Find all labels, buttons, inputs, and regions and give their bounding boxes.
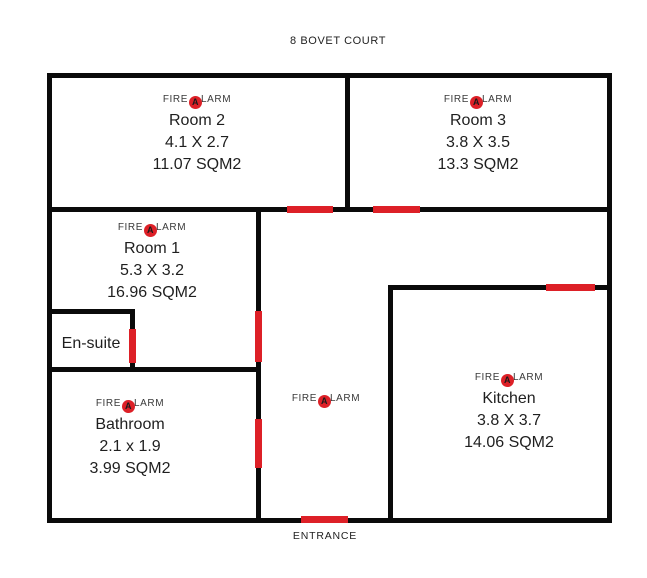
fire-alarm-label: FIREALARM bbox=[409, 370, 609, 385]
room-area: 11.07 SQM2 bbox=[97, 154, 297, 176]
room-dimensions: 3.8 X 3.7 bbox=[409, 410, 609, 432]
fire-alarm-text-suffix: LARM bbox=[134, 398, 164, 409]
door-marker-bathroom bbox=[255, 419, 262, 468]
wall-room2-room3-divider bbox=[345, 78, 350, 207]
room-area: 14.06 SQM2 bbox=[409, 432, 609, 454]
room-area: 3.99 SQM2 bbox=[30, 458, 230, 480]
room-name: Room 2 bbox=[97, 110, 297, 132]
door-marker-entrance bbox=[301, 516, 348, 523]
fire-alarm-label: FIREALARM bbox=[30, 396, 230, 411]
fire-alarm-text-prefix: FIRE bbox=[163, 94, 188, 105]
room-dimensions: 2.1 x 1.9 bbox=[30, 436, 230, 458]
wall-bathroom-top bbox=[52, 367, 256, 372]
fire-alarm-label: FIREALARM bbox=[378, 92, 578, 107]
fire-alarm-text-prefix: FIRE bbox=[444, 94, 469, 105]
room-name: Room 3 bbox=[378, 110, 578, 132]
fire-alarm-text-suffix: LARM bbox=[156, 222, 186, 233]
bathroom-label-block: FIREALARM Bathroom 2.1 x 1.9 3.99 SQM2 bbox=[30, 396, 230, 480]
room-dimensions: 3.8 X 3.5 bbox=[378, 132, 578, 154]
plan-title: 8 BOVET COURT bbox=[238, 35, 438, 47]
fire-alarm-text-prefix: FIRE bbox=[118, 222, 143, 233]
ensuite-label: En-suite bbox=[52, 334, 130, 354]
door-marker-room1 bbox=[255, 311, 262, 362]
room-name: Kitchen bbox=[409, 388, 609, 410]
door-marker-room2 bbox=[287, 206, 333, 213]
wall-hallway-left bbox=[256, 212, 261, 518]
entrance-label: ENTRANCE bbox=[225, 530, 425, 542]
door-marker-ensuite bbox=[129, 329, 136, 363]
room-area: 16.96 SQM2 bbox=[52, 282, 252, 304]
kitchen-label-block: FIREALARM Kitchen 3.8 X 3.7 14.06 SQM2 bbox=[409, 370, 609, 454]
room-dimensions: 5.3 X 3.2 bbox=[52, 260, 252, 282]
fire-alarm-label: FIREALARM bbox=[97, 92, 297, 107]
fire-alarm-text-suffix: LARM bbox=[330, 393, 360, 404]
room3-label-block: FIREALARM Room 3 3.8 X 3.5 13.3 SQM2 bbox=[378, 92, 578, 176]
fire-alarm-text-prefix: FIRE bbox=[292, 393, 317, 404]
fire-alarm-label: FIREALARM bbox=[226, 391, 426, 406]
fire-alarm-label: FIREALARM bbox=[52, 220, 252, 235]
door-marker-room3 bbox=[373, 206, 420, 213]
floor-plan: 8 BOVET COURT FIREALARM Room 2 4.1 X 2.7… bbox=[0, 0, 647, 578]
room-name: Bathroom bbox=[30, 414, 230, 436]
fire-alarm-text-suffix: LARM bbox=[201, 94, 231, 105]
fire-alarm-text-prefix: FIRE bbox=[475, 372, 500, 383]
room-area: 13.3 SQM2 bbox=[378, 154, 578, 176]
wall-ensuite-top bbox=[52, 309, 135, 314]
room2-label-block: FIREALARM Room 2 4.1 X 2.7 11.07 SQM2 bbox=[97, 92, 297, 176]
hallway-label-block: FIREALARM bbox=[226, 391, 426, 409]
fire-alarm-text-prefix: FIRE bbox=[96, 398, 121, 409]
room1-label-block: FIREALARM Room 1 5.3 X 3.2 16.96 SQM2 bbox=[52, 220, 252, 304]
door-marker-kitchen bbox=[546, 284, 595, 291]
room-dimensions: 4.1 X 2.7 bbox=[97, 132, 297, 154]
fire-alarm-text-suffix: LARM bbox=[482, 94, 512, 105]
room-name: Room 1 bbox=[52, 238, 252, 260]
fire-alarm-text-suffix: LARM bbox=[513, 372, 543, 383]
